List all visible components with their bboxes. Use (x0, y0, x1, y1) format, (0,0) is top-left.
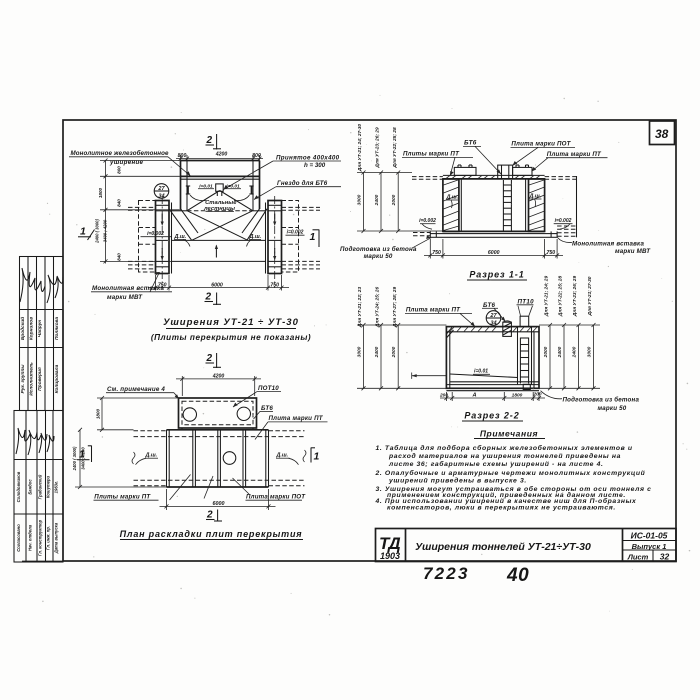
svg-text:3000: 3000 (357, 346, 363, 357)
svg-text:Плита марки ПТ: Плита марки ПТ (406, 307, 461, 314)
svg-text:3400 ; 4200: 3400 ; 4200 (81, 447, 86, 470)
svg-text:2000: 2000 (543, 346, 549, 358)
svg-text:Нач. отдела: Нач. отдела (28, 524, 33, 551)
svg-text:Д.ш.: Д.ш. (145, 453, 158, 459)
svg-text:Корнилов: Корнилов (28, 317, 34, 340)
svg-text:Для УТ-21; 27-30: Для УТ-21; 27-30 (587, 276, 593, 316)
svg-text:2400: 2400 (572, 346, 578, 358)
svg-text:Бродский: Бродский (19, 317, 26, 340)
svg-text:Для УТ-21; 24; 27-30: Для УТ-21; 24; 27-30 (357, 124, 363, 173)
svg-text:800: 800 (178, 153, 187, 159)
svg-text:БТ6: БТ6 (464, 140, 477, 147)
svg-text:2000: 2000 (391, 346, 397, 358)
svg-text:уширений приведены в выпуске 3: уширений приведены в выпуске 3. (388, 476, 527, 484)
svg-text:ПТ10: ПТ10 (518, 298, 535, 305)
svg-text:2400: 2400 (557, 346, 563, 358)
svg-text:Уширения тоннелей УТ-21÷УТ-30: Уширения тоннелей УТ-21÷УТ-30 (415, 541, 591, 553)
svg-text:2: 2 (206, 510, 213, 521)
svg-text:Плита марки ПТ: Плита марки ПТ (547, 151, 602, 158)
svg-text:2000: 2000 (391, 194, 397, 206)
svg-text:1. Таблица для подбора сборных: 1. Таблица для подбора сборных железобет… (376, 444, 633, 452)
svg-text:7223: 7223 (423, 564, 470, 583)
svg-text:27: 27 (489, 313, 497, 319)
svg-text:Плита марки ПОТ: Плита марки ПОТ (511, 141, 571, 148)
svg-text:i=0.01: i=0.01 (474, 368, 488, 374)
svg-text:840: 840 (117, 253, 122, 261)
svg-text:БТ6: БТ6 (261, 405, 273, 412)
svg-text:Бандос: Бандос (28, 479, 33, 495)
svg-text:Плиты марки ПТ: Плиты марки ПТ (403, 151, 460, 158)
svg-text:Монолитная вставка: Монолитная вставка (572, 240, 644, 247)
svg-text:Согласовано: Согласовано (16, 524, 21, 552)
svg-text:34: 34 (158, 193, 165, 199)
svg-text:ПОТ10: ПОТ10 (258, 385, 279, 392)
svg-text:3000: 3000 (587, 346, 593, 357)
svg-text:марки 50: марки 50 (598, 405, 627, 412)
svg-text:750: 750 (432, 250, 441, 256)
svg-text:i=0.002: i=0.002 (555, 218, 572, 224)
svg-text:Д.ш.: Д.ш. (276, 453, 289, 459)
svg-text:марки МВТ: марки МВТ (107, 294, 143, 301)
svg-text:Плита марки ПТ: Плита марки ПТ (269, 415, 324, 422)
svg-text:Подготовка из бетона: Подготовка из бетона (340, 246, 417, 253)
svg-text:Градинский: Градинский (37, 474, 42, 499)
svg-text:План раскладки плит перекрытия: План раскладки плит перекрытия (120, 529, 303, 539)
svg-text:Монолитная вставка: Монолитная вставка (92, 285, 164, 292)
svg-text:Разрез 2-2: Разрез 2-2 (464, 411, 519, 421)
svg-text:Гл. конструктор: Гл. конструктор (37, 519, 42, 556)
svg-text:6000: 6000 (211, 282, 223, 288)
svg-text:Для УТ-21; 22; 23: Для УТ-21; 22; 23 (357, 287, 363, 329)
svg-text:Плиты марки ПТ: Плиты марки ПТ (94, 493, 151, 500)
svg-text:Чапрун: Чапрун (37, 320, 43, 337)
svg-text:i=0.002: i=0.002 (287, 230, 304, 236)
svg-text:Подготовка из бетона: Подготовка из бетона (563, 397, 640, 404)
svg-text:4200: 4200 (215, 152, 228, 158)
svg-text:Солодовников: Солодовников (16, 471, 21, 502)
svg-text:Принятое 400x400: Принятое 400x400 (276, 154, 340, 161)
svg-text:Дата выпуска: Дата выпуска (54, 522, 59, 554)
svg-text:листе 36; габаритные схемы уши: листе 36; габаритные схемы уширений - на… (388, 460, 604, 468)
svg-text:200: 200 (532, 391, 541, 397)
svg-text:2400: 2400 (374, 346, 380, 358)
svg-text:компенсаторов, люки в перекрыт: компенсаторов, люки в перекрытиях не уст… (387, 505, 616, 512)
svg-text:Разрез 1-1: Разрез 1-1 (469, 270, 524, 280)
svg-text:200: 200 (439, 393, 448, 399)
svg-text:1800: 1800 (98, 187, 103, 198)
svg-text:750: 750 (546, 250, 555, 256)
svg-text:6000: 6000 (213, 501, 225, 507)
svg-text:Плита марки ПОТ: Плита марки ПОТ (246, 493, 306, 500)
svg-text:Для УТ-22; 25; 28: Для УТ-22; 25; 28 (392, 127, 398, 169)
svg-text:Примечания: Примечания (480, 429, 538, 439)
svg-text:34: 34 (490, 320, 497, 326)
svg-text:Полякова: Полякова (54, 317, 60, 340)
svg-text:Уширения УТ-21 ÷ УТ-30: Уширения УТ-21 ÷ УТ-30 (163, 317, 299, 328)
svg-text:Рук. группы: Рук. группы (20, 364, 26, 394)
svg-text:38: 38 (655, 127, 669, 141)
svg-text:4200: 4200 (212, 373, 225, 379)
svg-text:Для УТ-23; 26; 29: Для УТ-23; 26; 29 (375, 127, 381, 169)
svg-text:Для УТ-24; 25; 26: Для УТ-24; 25; 26 (375, 287, 381, 329)
svg-text:См. примечание 4: См. примечание 4 (107, 386, 165, 393)
svg-text:Гнездо для БТ6: Гнездо для БТ6 (277, 180, 328, 187)
svg-text:1903: 1903 (380, 551, 400, 561)
svg-text:марки МВТ: марки МВТ (615, 248, 651, 255)
svg-text:2. Опалубочные и арматурные че: 2. Опалубочные и арматурные чертежи моно… (375, 469, 646, 477)
svg-text:1: 1 (314, 451, 320, 463)
svg-text:Монолитное железобетонное: Монолитное железобетонное (71, 150, 170, 157)
svg-text:(Плиты перекрытия не показаны): (Плиты перекрытия не показаны) (151, 333, 311, 342)
svg-text:Выпуск 1: Выпуск 1 (632, 542, 667, 551)
svg-text:Для УТ-22; 25; 28: Для УТ-22; 25; 28 (558, 276, 564, 318)
svg-text:БТ6: БТ6 (483, 302, 496, 309)
svg-text:А: А (471, 393, 476, 399)
svg-text:3000: 3000 (357, 194, 363, 205)
svg-text:2: 2 (205, 292, 212, 303)
svg-text:32: 32 (660, 552, 670, 562)
svg-text:1963г.: 1963г. (54, 481, 59, 494)
svg-text:Стальные: Стальные (205, 200, 237, 206)
svg-text:ИС-01-05: ИС-01-05 (631, 531, 668, 541)
svg-text:2400 ( 3000): 2400 ( 3000) (95, 219, 100, 244)
svg-text:2400: 2400 (374, 194, 380, 206)
svg-text:Для УТ-21; 24; 29: Для УТ-21; 24; 29 (544, 276, 550, 318)
svg-text:40: 40 (506, 565, 529, 586)
svg-text:Для УТ-27; 28; 29: Для УТ-27; 28; 29 (392, 287, 398, 329)
svg-text:i=0.002: i=0.002 (147, 231, 164, 237)
svg-text:Для УТ-23; 26; 29: Для УТ-23; 26; 29 (572, 276, 578, 318)
svg-text:3400 ; 4200: 3400 ; 4200 (103, 219, 108, 242)
svg-text:i=0.002: i=0.002 (419, 218, 436, 224)
svg-text:750: 750 (270, 282, 279, 288)
svg-text:расход материалов на уширения: расход материалов на уширения тоннелей п… (388, 452, 621, 460)
svg-text:2400 ( 3000): 2400 ( 3000) (72, 446, 77, 471)
svg-text:Гл. инж. пр.: Гл. инж. пр. (45, 526, 50, 550)
svg-text:марки 50: марки 50 (364, 253, 393, 260)
svg-text:2: 2 (206, 135, 213, 146)
svg-text:Кошутери: Кошутери (45, 475, 50, 498)
svg-text:800: 800 (117, 166, 122, 174)
svg-text:6000: 6000 (488, 250, 500, 256)
svg-text:27: 27 (157, 186, 165, 192)
svg-text:1: 1 (310, 231, 316, 243)
svg-text:Исполнитель: Исполнитель (28, 362, 34, 396)
svg-text:h = 300: h = 300 (304, 162, 326, 169)
svg-text:Копировала: Копировала (54, 364, 60, 393)
svg-text:1: 1 (80, 226, 86, 238)
svg-text:1800: 1800 (96, 408, 101, 419)
svg-text:2: 2 (206, 353, 213, 364)
svg-text:1800: 1800 (512, 393, 523, 399)
svg-text:Лист: Лист (627, 553, 649, 562)
svg-text:Проверил: Проверил (37, 367, 43, 391)
svg-text:800: 800 (252, 153, 261, 159)
svg-text:840: 840 (117, 199, 122, 207)
svg-text:уширение: уширение (109, 159, 144, 166)
